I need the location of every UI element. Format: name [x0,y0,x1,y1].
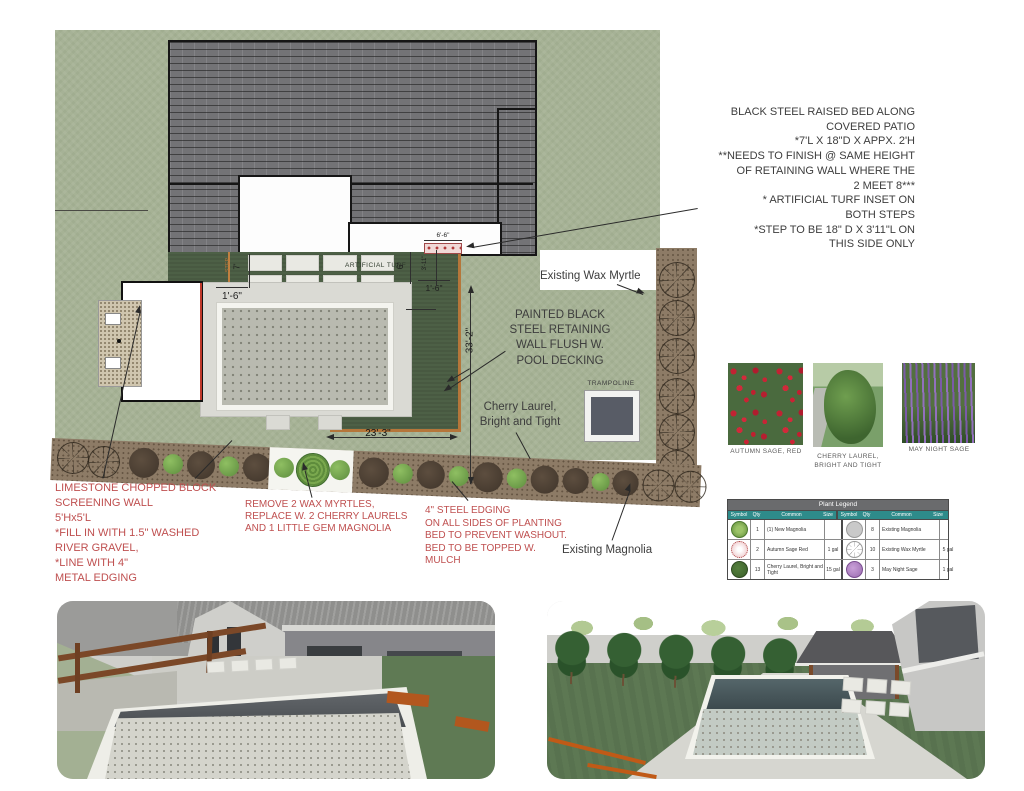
wax-myrtle-tree-symbol [642,469,675,502]
pool-equipment [105,357,121,369]
deck-tab [266,415,290,430]
paver-patch [841,677,914,722]
dim-step-length: 3'-11" [422,250,428,276]
symbol-cell [728,520,751,539]
paver-stone [279,657,298,670]
size-cell [940,520,956,539]
dim-arrow [468,285,474,293]
legend-header-qty: Qty [750,511,763,519]
photo-caption-may-night-sage: MAY NIGHT SAGE [893,446,985,453]
legend-header-common: Common [873,511,930,519]
landscape-plan-sheet: ARTIFICIAL TURF STEP TRAMPOLINE [0,0,1024,791]
legend-row: 13 Cherry Laurel, Bright and Tight 15 ga… [728,560,948,579]
qty-cell: 3 [866,560,880,579]
photo-caption-cherry-laurel: CHERRY LAUREL, BRIGHT AND TIGHT [800,452,896,470]
laurel-bush-symbol [219,456,240,477]
paver-stone [841,699,862,714]
trampoline [584,390,640,442]
paver-stone [889,702,910,717]
dim-line [418,280,450,281]
wax-myrtle-tree-symbol [659,378,695,414]
paver-stone [286,255,320,271]
paver-stone [890,680,911,695]
existing-shrub-symbol [530,465,559,494]
legend-header-symbol: Symbol [838,511,860,519]
pool [217,303,393,410]
new-magnolia-symbol [295,452,330,487]
drain-dot [117,339,121,343]
trampoline-mat [591,397,633,435]
dim-line [424,240,462,241]
dim-bed-length: 6'-6" [422,232,464,239]
common-name-cell: (1) New Magnolia [765,520,825,539]
dim-line [410,252,411,284]
plant-legend: Plant Legend Symbol Qty Common Size Symb… [727,499,949,580]
pool-water [105,713,411,779]
common-name-cell: Cherry Laurel, Bright and Tight [765,560,825,579]
symbol-cell [843,540,866,559]
pergola-post [75,643,80,693]
existing-shrub-symbol [416,460,445,489]
render-view-pool-toward-house [57,601,495,779]
dim-arrow [326,434,334,440]
existing-wax-myrtle-label: Existing Wax Myrtle [540,270,662,282]
paver-stone [231,659,250,672]
wax-myrtle-tree-symbol [674,470,707,503]
laurel-bush-symbol [329,460,350,481]
legend-row: 2 Autumn Sage Red 1 gal 10 Existing Wax … [728,540,948,560]
paver-stone [255,658,274,671]
dim-turf-depth: 6' [395,256,405,276]
cherry-laurel-label: Cherry Laurel, Bright and Tight [466,400,574,430]
pool-equipment [105,313,121,325]
existing-shrub-symbol [612,470,639,497]
photo-cherry-laurel [813,363,883,447]
size-cell: 1 gal [825,540,843,559]
laurel-bush-symbol [506,468,527,489]
wax-myrtle-tree-symbol [659,300,695,336]
common-name-cell: Autumn Sage Red [765,540,825,559]
gravel-equipment-pad [98,300,142,387]
dim-line [470,288,471,484]
dim-right-gap: 1'-6" [414,283,454,293]
roof-inset-line [497,108,536,222]
symbol-cell [843,520,866,539]
laurel-bush-symbol [392,463,413,484]
legend-header-symbol: Symbol [728,511,750,519]
dim-step-width: 7' [233,257,242,277]
paver-stone [865,700,886,715]
laurel-bush-symbol [448,466,469,487]
size-cell: 1 gal [940,560,956,579]
may-night-sage-symbol [846,561,863,578]
photo-caption-autumn-sage: AUTUMN SAGE, RED [720,448,812,455]
laurel-bush-symbol [163,454,184,475]
dim-line [406,309,436,310]
legend-header-row: Symbol Qty Common Size Symbol Qty Common… [728,511,948,520]
wax-myrtle-tree-symbol [659,262,695,298]
photo-autumn-sage [728,363,803,445]
size-cell: 15 gal [825,560,843,579]
legend-row: 1 (1) New Magnolia 8 Existing Magnolia [728,520,948,540]
laurel-bush-photo [824,370,876,444]
painted-wall-note: PAINTED BLACK STEEL RETAINING WALL FLUSH… [503,308,617,369]
dim-line [216,287,248,288]
qty-cell: 13 [751,560,765,579]
symbol-cell [728,540,751,559]
dim-line [249,254,250,288]
patio-cutout [238,175,352,256]
cherry-laurel-symbol [731,561,748,578]
render-view-along-pool [547,601,985,779]
raised-bed-note: BLACK STEEL RAISED BED ALONG COVERED PAT… [700,105,915,252]
legend-header-qty: Qty [860,511,873,519]
trampoline-label: TRAMPOLINE [576,380,646,387]
dim-arrow [450,434,458,440]
wax-myrtle-symbol [846,541,863,558]
existing-tree-symbol [57,442,89,474]
house-eave [282,625,495,631]
legend-header-size: Size [930,511,946,519]
existing-shrub-symbol [562,467,589,494]
fence-line [55,210,148,211]
retaining-wall-east [458,250,461,432]
existing-shrub-symbol [358,457,389,488]
dim-left-gap: 1'-6" [212,291,252,302]
existing-magnolia-symbol [846,521,863,538]
paver-stone [866,678,887,693]
legend-header-common: Common [763,511,820,519]
size-cell [825,520,843,539]
existing-shrub-symbol [472,462,503,493]
qty-cell: 2 [751,540,765,559]
paver-stone [248,255,282,271]
qty-cell: 1 [751,520,765,539]
laurel-bush-symbol [274,457,295,478]
existing-shrub-symbol [186,451,215,480]
pool-reflection [695,679,865,713]
common-name-cell: Existing Wax Myrtle [880,540,940,559]
common-name-cell: Existing Magnolia [880,520,940,539]
step-label: STEP [225,253,231,277]
common-name-cell: May Night Sage [880,560,940,579]
existing-shrub-symbol [128,447,159,478]
new-magnolia-symbol [731,521,748,538]
raised-bed [424,243,462,254]
legend-header-size: Size [820,511,838,519]
laurel-bush-symbol [591,473,610,492]
new-planting-highlight [268,447,354,492]
qty-cell: 10 [866,540,880,559]
deck-tab [318,415,342,430]
wax-myrtle-tree-symbol [659,338,695,374]
dim-pool-length: 23'-3" [348,428,408,439]
autumn-sage-symbol [731,541,748,558]
limestone-note: LIMESTONE CHOPPED BLOCK SCREENING WALL 5… [55,481,233,586]
cabana-red-edge [200,283,202,400]
paver-stone [207,661,226,674]
symbol-cell [843,560,866,579]
existing-magnolia-label: Existing Magnolia [562,544,670,556]
dim-arrow [468,477,474,485]
legend-title: Plant Legend [728,500,948,511]
symbol-cell [728,560,751,579]
paver-stone [843,677,864,692]
size-cell: 5 gal [940,540,956,559]
photo-may-night-sage [902,363,975,443]
wax-myrtle-tree-symbol [659,414,695,450]
qty-cell: 8 [866,520,880,539]
steel-edging-note: 4" STEEL EDGING ON ALL SIDES OF PLANTING… [425,505,567,568]
dim-yard-depth: 33'-2" [465,319,476,363]
dim-line [436,250,437,286]
existing-shrub-symbol [242,453,271,482]
remove-myrtles-note: REMOVE 2 WAX MYRTLES, REPLACE W. 2 CHERR… [245,499,423,534]
